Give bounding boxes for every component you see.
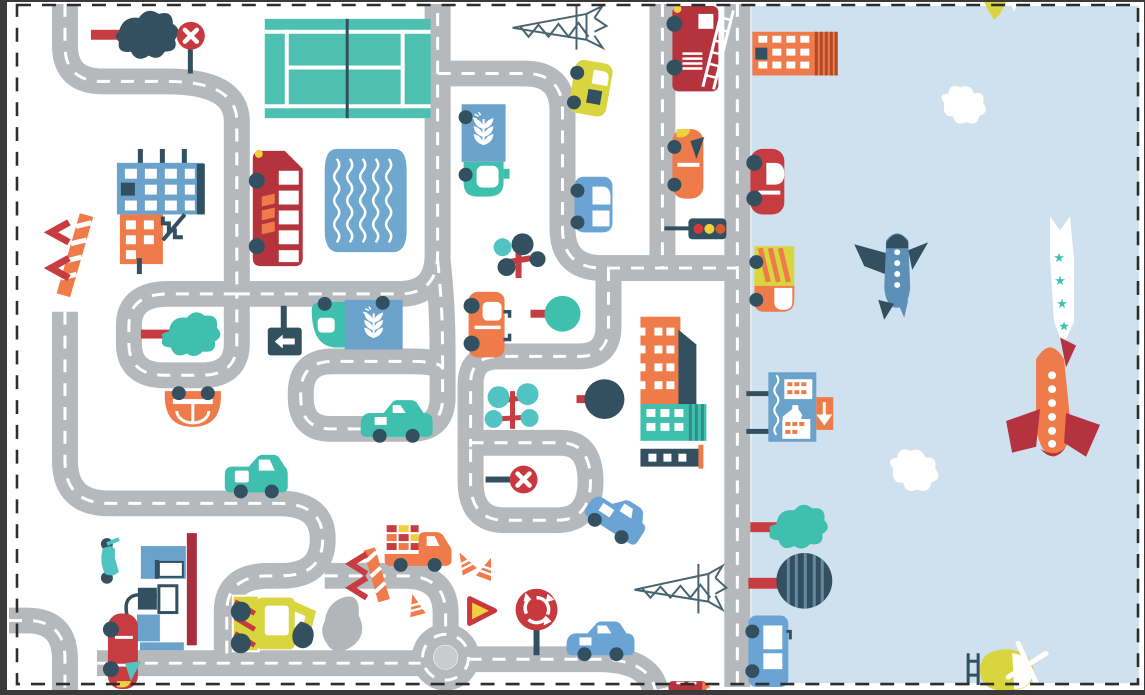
tennis-court	[265, 19, 431, 118]
teal-building	[640, 404, 706, 441]
playmat-illustration: ★ ★ ★ ★	[7, 2, 1144, 690]
red-car-gas	[103, 614, 141, 689]
orange-building-striped	[752, 32, 836, 76]
swimming-pool	[325, 149, 407, 252]
crates	[387, 525, 419, 550]
banner-star-icon: ★	[1056, 297, 1068, 312]
bakery-truck-wheat	[312, 296, 403, 350]
double-decker-bus	[249, 150, 303, 266]
orange-car-side	[667, 129, 704, 198]
gas-station-pole	[187, 533, 197, 645]
red-car-bottom-edge	[668, 681, 710, 690]
play-mat-canvas: ★ ★ ★ ★	[7, 2, 1144, 690]
banner-star-icon: ★	[1054, 274, 1066, 289]
taxi-orange	[464, 292, 510, 358]
tennis-net	[346, 19, 349, 118]
blue-bus-right	[745, 616, 790, 687]
screenshot-root: ★ ★ ★ ★	[0, 0, 1145, 695]
cargo-truck-wheat	[459, 104, 510, 196]
red-car-top	[746, 149, 784, 215]
roundabout-island	[434, 645, 458, 669]
yellow-truck	[749, 246, 794, 312]
banner-star-icon: ★	[1053, 251, 1065, 266]
blue-van	[571, 177, 613, 233]
banner-star-icon: ★	[1058, 320, 1070, 335]
